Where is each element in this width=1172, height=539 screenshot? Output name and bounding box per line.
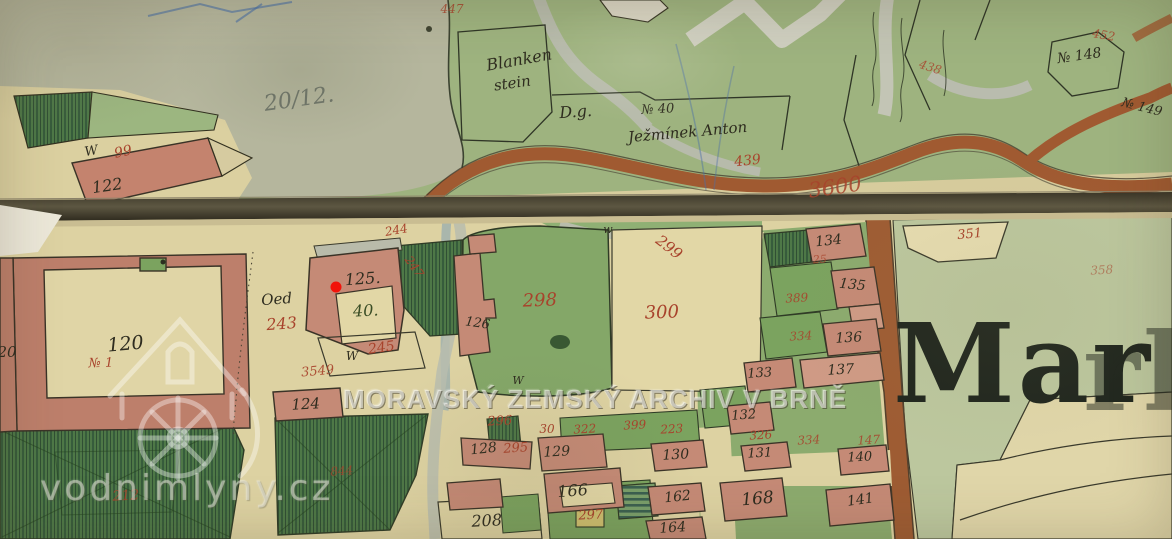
map-label-135: 135 (838, 276, 866, 295)
map-label-128: 128 (469, 440, 497, 459)
map-label-30: 30 (539, 422, 555, 436)
map-label-334: 334 (797, 432, 821, 447)
cadastral-map-drawing: 20/12.BlankensteinD.g.№ 40Ježmínek Anton… (0, 0, 1172, 539)
map-label-25: 25 (811, 253, 827, 267)
map-label-136: 136 (835, 329, 863, 346)
map-label-208: 208 (470, 510, 502, 531)
plot-300 (612, 226, 762, 392)
map-label-164: 164 (659, 519, 687, 537)
map-label-140: 140 (847, 449, 873, 465)
map-label-162: 162 (663, 488, 691, 507)
map-label-399: 399 (623, 417, 647, 432)
map-label-447: 447 (440, 2, 464, 16)
map-label-168: 168 (741, 488, 775, 511)
map-label-243: 243 (265, 313, 298, 334)
map-label-223: 223 (659, 421, 684, 436)
map-label-351: 351 (957, 226, 983, 243)
map-label-131: 131 (747, 445, 773, 461)
map-label-120: 120 (106, 331, 144, 356)
map-label-W: W (512, 374, 525, 387)
map-label-130: 130 (662, 446, 690, 463)
map-label-298: 298 (521, 289, 557, 311)
map-label-125: 125. (344, 268, 381, 289)
map-label-Oed: Oed (261, 289, 293, 309)
map-label-134: 134 (814, 232, 842, 251)
map-label-300: 300 (644, 301, 679, 323)
map-canvas[interactable]: 20/12.BlankensteinD.g.№ 40Ježmínek Anton… (0, 0, 1172, 539)
map-label-212: 212 (111, 487, 140, 504)
map-label-W: W (346, 349, 360, 363)
map-label-439: 439 (732, 152, 761, 171)
map-label-334: 334 (789, 328, 813, 343)
map-label-w: w (603, 223, 613, 236)
map-label-358: 358 (1090, 262, 1114, 277)
map-label-326: 326 (749, 427, 773, 442)
map-label-322: 322 (573, 421, 597, 436)
map-label-147: 147 (857, 432, 881, 447)
map-label-3549: 3549 (301, 363, 335, 381)
garden-bottom-left (0, 424, 244, 539)
map-label-129: 129 (543, 443, 571, 460)
red-dot-marker (331, 282, 342, 293)
map-label-296: 296 (486, 413, 513, 429)
plot-garden-top-left (14, 92, 92, 148)
map-label-133: 133 (747, 365, 773, 382)
sheet-title-ghost-text: rk (1083, 310, 1172, 436)
map-label-844: 844 (330, 463, 354, 479)
map-label-124: 124 (291, 394, 321, 413)
map-label-1: № 1 (87, 356, 113, 372)
map-label-137: 137 (827, 361, 855, 378)
map-label-132: 132 (731, 407, 757, 424)
map-label-389: 389 (785, 290, 809, 305)
map-label-295: 295 (502, 440, 529, 457)
map-label-Dg: D.g. (558, 101, 593, 122)
map-label-166: 166 (557, 480, 589, 501)
map-label-40: 40. (352, 300, 379, 320)
map-label-40: № 40 (640, 101, 675, 118)
map-label-297: 297 (577, 507, 604, 523)
map-label-20: 20 (0, 343, 17, 361)
